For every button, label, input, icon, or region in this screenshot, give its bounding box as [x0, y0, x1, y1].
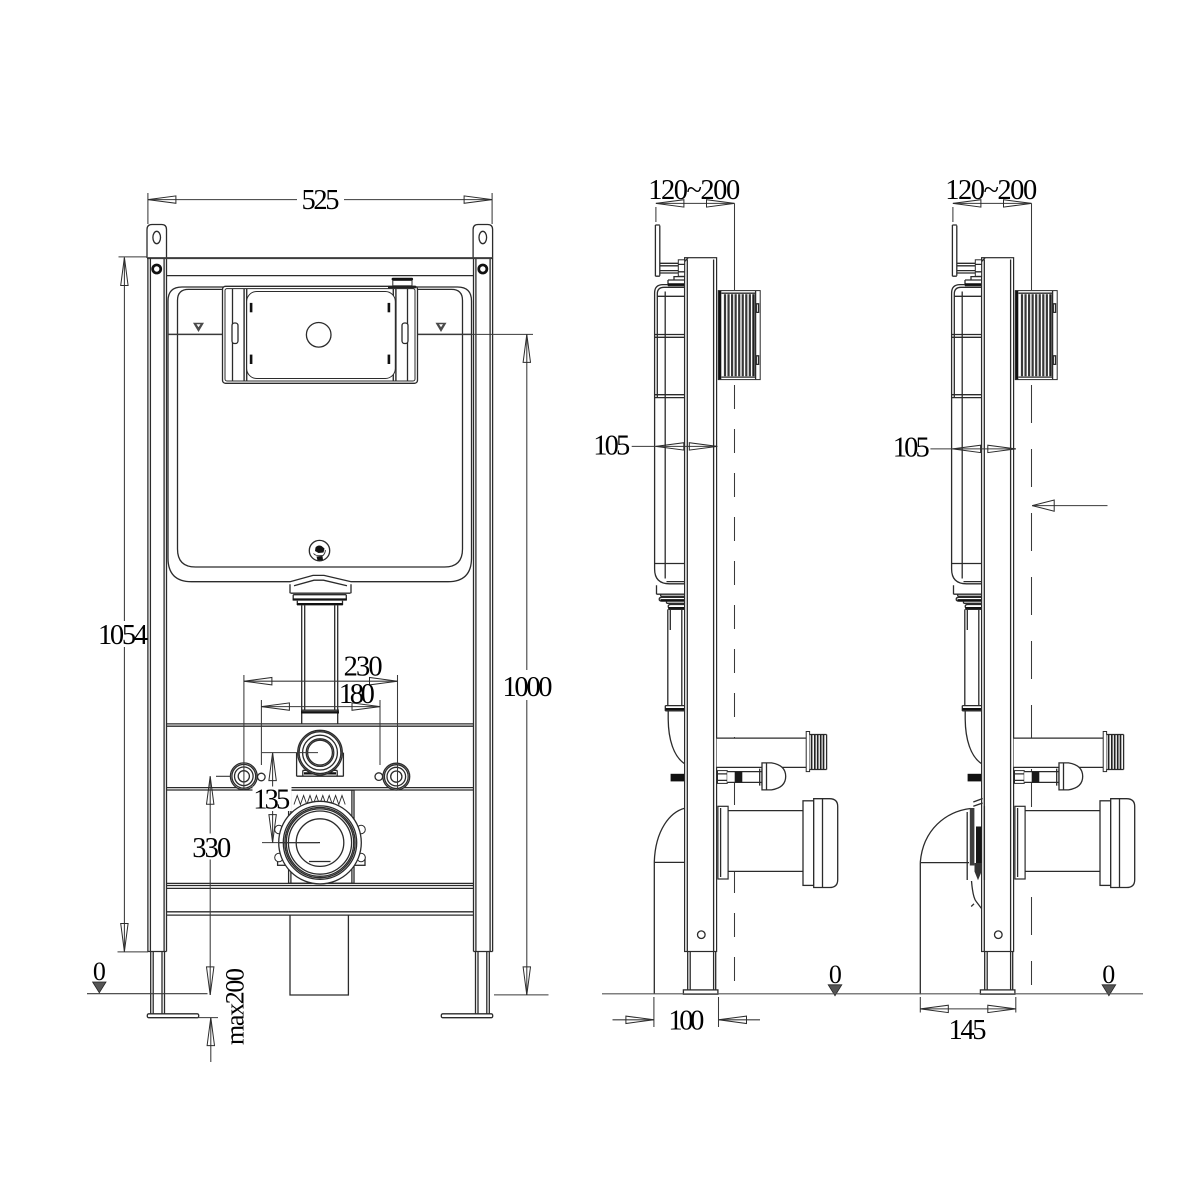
svg-text:120~200: 120~200	[648, 175, 740, 206]
svg-text:135: 135	[253, 785, 290, 816]
svg-text:1000: 1000	[503, 672, 553, 703]
svg-text:1054: 1054	[98, 620, 148, 651]
svg-text:145: 145	[949, 1015, 987, 1046]
svg-text:120~200: 120~200	[945, 175, 1037, 206]
svg-text:180: 180	[339, 679, 375, 710]
svg-text:105: 105	[893, 433, 930, 464]
svg-text:100: 100	[668, 1006, 704, 1037]
svg-text:105: 105	[593, 431, 630, 462]
svg-text:525: 525	[302, 185, 340, 216]
svg-text:230: 230	[344, 652, 383, 683]
svg-text:max200: max200	[221, 968, 250, 1045]
svg-text:330: 330	[192, 833, 231, 864]
